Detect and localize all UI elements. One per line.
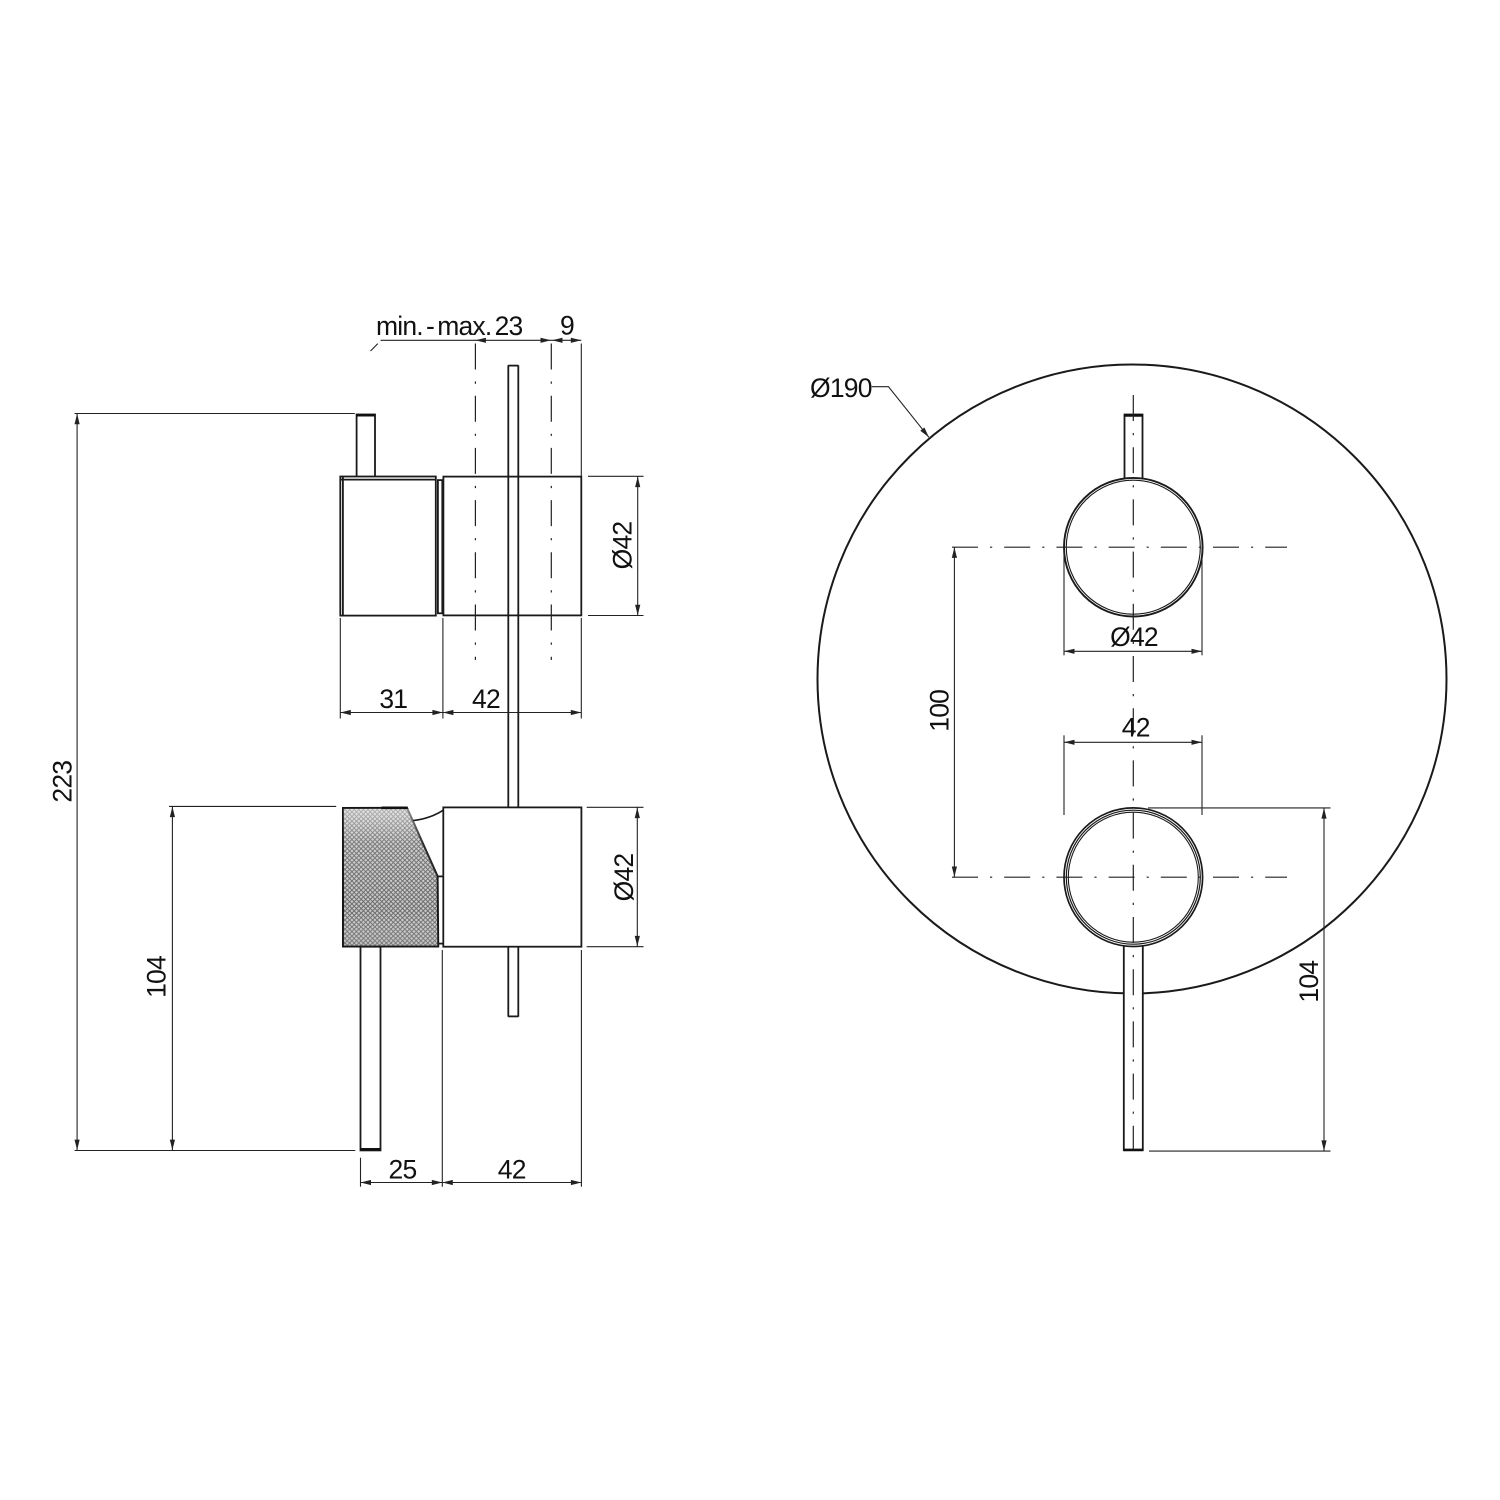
- svg-text:42: 42: [1122, 713, 1150, 743]
- svg-text:25: 25: [389, 1154, 417, 1184]
- svg-text:31: 31: [379, 684, 407, 714]
- svg-text:Ø42: Ø42: [608, 522, 638, 570]
- svg-text:Ø42: Ø42: [609, 854, 639, 902]
- svg-text:100: 100: [925, 690, 955, 732]
- svg-text:42: 42: [498, 1154, 526, 1184]
- svg-text:104: 104: [142, 956, 172, 998]
- svg-text:min. - max. 23: min. - max. 23: [376, 311, 523, 341]
- svg-text:42: 42: [472, 684, 500, 714]
- svg-text:223: 223: [48, 761, 78, 803]
- svg-text:9: 9: [560, 311, 574, 341]
- svg-text:Ø42: Ø42: [1110, 622, 1158, 652]
- svg-text:104: 104: [1294, 961, 1324, 1003]
- svg-text:Ø190: Ø190: [810, 373, 872, 403]
